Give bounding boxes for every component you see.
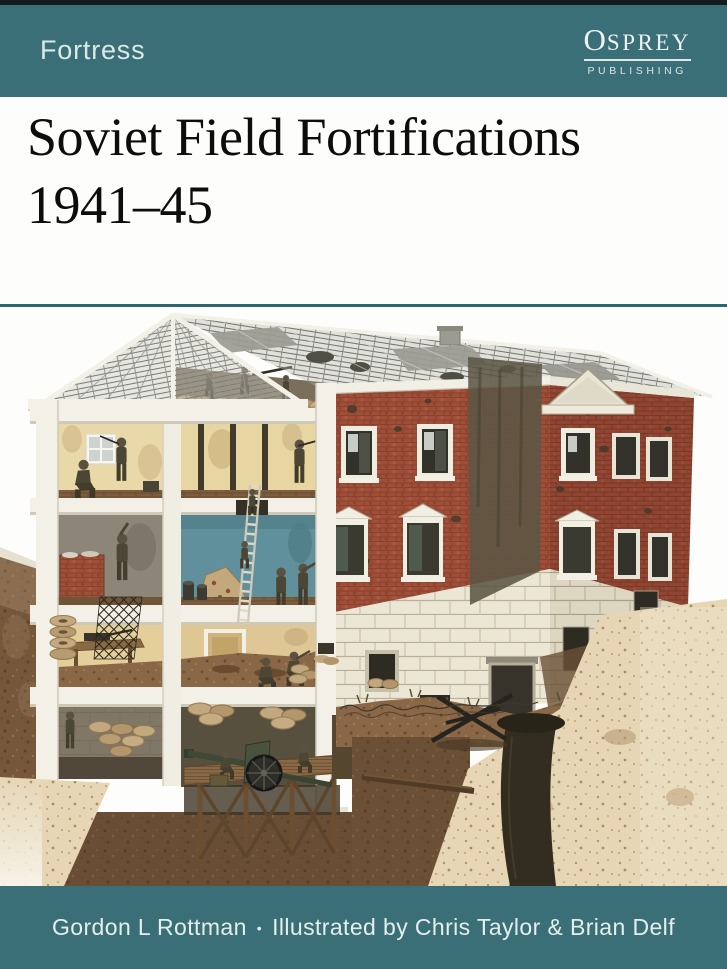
bottom-banner: Gordon L Rottman•Illustrated by Chris Ta… (0, 886, 727, 969)
series-title: Fortress (40, 35, 145, 66)
logo-rule (584, 59, 691, 61)
room-third-floor-left (58, 424, 163, 500)
camouflage-net (94, 597, 142, 659)
ammo-box (210, 775, 228, 786)
chimney (437, 326, 463, 345)
publisher-name: OSPREY (584, 25, 691, 58)
room-second-floor-left (58, 515, 163, 605)
title-line-2: 1941–45 (27, 171, 713, 239)
loophole (318, 643, 334, 654)
book-cover: Fortress OSPREY PUBLISHING Soviet Field … (0, 0, 727, 969)
title-line-1: Soviet Field Fortifications (27, 103, 713, 171)
book-title: Soviet Field Fortifications 1941–45 (27, 103, 713, 239)
room-ground-floor-right (181, 625, 319, 692)
publisher-logo: OSPREY PUBLISHING (584, 25, 691, 77)
top-banner: Fortress OSPREY PUBLISHING (0, 5, 727, 97)
interior-window (86, 434, 116, 464)
illustrator-credit: Illustrated by Chris Taylor & Brian Delf (272, 914, 675, 940)
publisher-name-rest: SPREY (607, 30, 691, 55)
byline-separator-icon: • (247, 920, 272, 936)
brick-pile (60, 551, 104, 603)
basement-left (58, 707, 163, 779)
author-name: Gordon L Rottman (52, 914, 247, 940)
publisher-tagline: PUBLISHING (584, 65, 691, 77)
publisher-initial: O (584, 22, 607, 57)
byline: Gordon L Rottman•Illustrated by Chris Ta… (52, 914, 675, 941)
cover-illustration (0, 307, 727, 886)
